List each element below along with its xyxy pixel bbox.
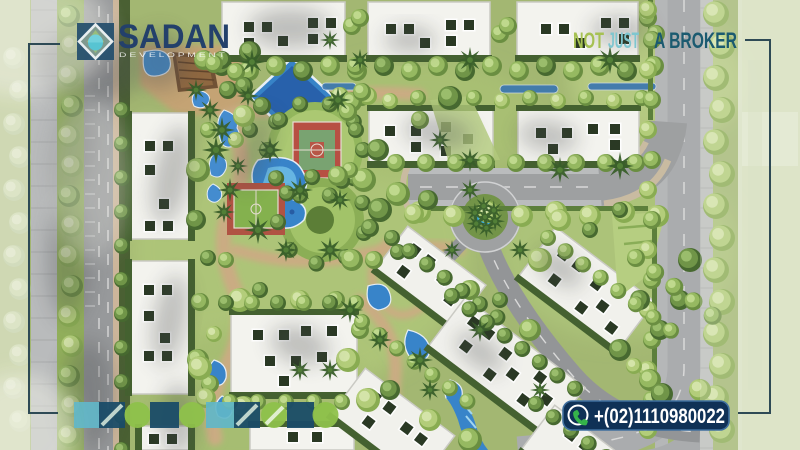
- svg-text:A BROKER: A BROKER: [654, 28, 737, 53]
- svg-text:JUST: JUST: [608, 28, 639, 53]
- svg-text:D E V E L O P M E N T: D E V E L O P M E N T: [119, 52, 225, 59]
- svg-text:SADAN: SADAN: [118, 18, 230, 56]
- svg-text:+(02)1110980022: +(02)1110980022: [594, 405, 725, 428]
- svg-text:NOT: NOT: [573, 28, 604, 53]
